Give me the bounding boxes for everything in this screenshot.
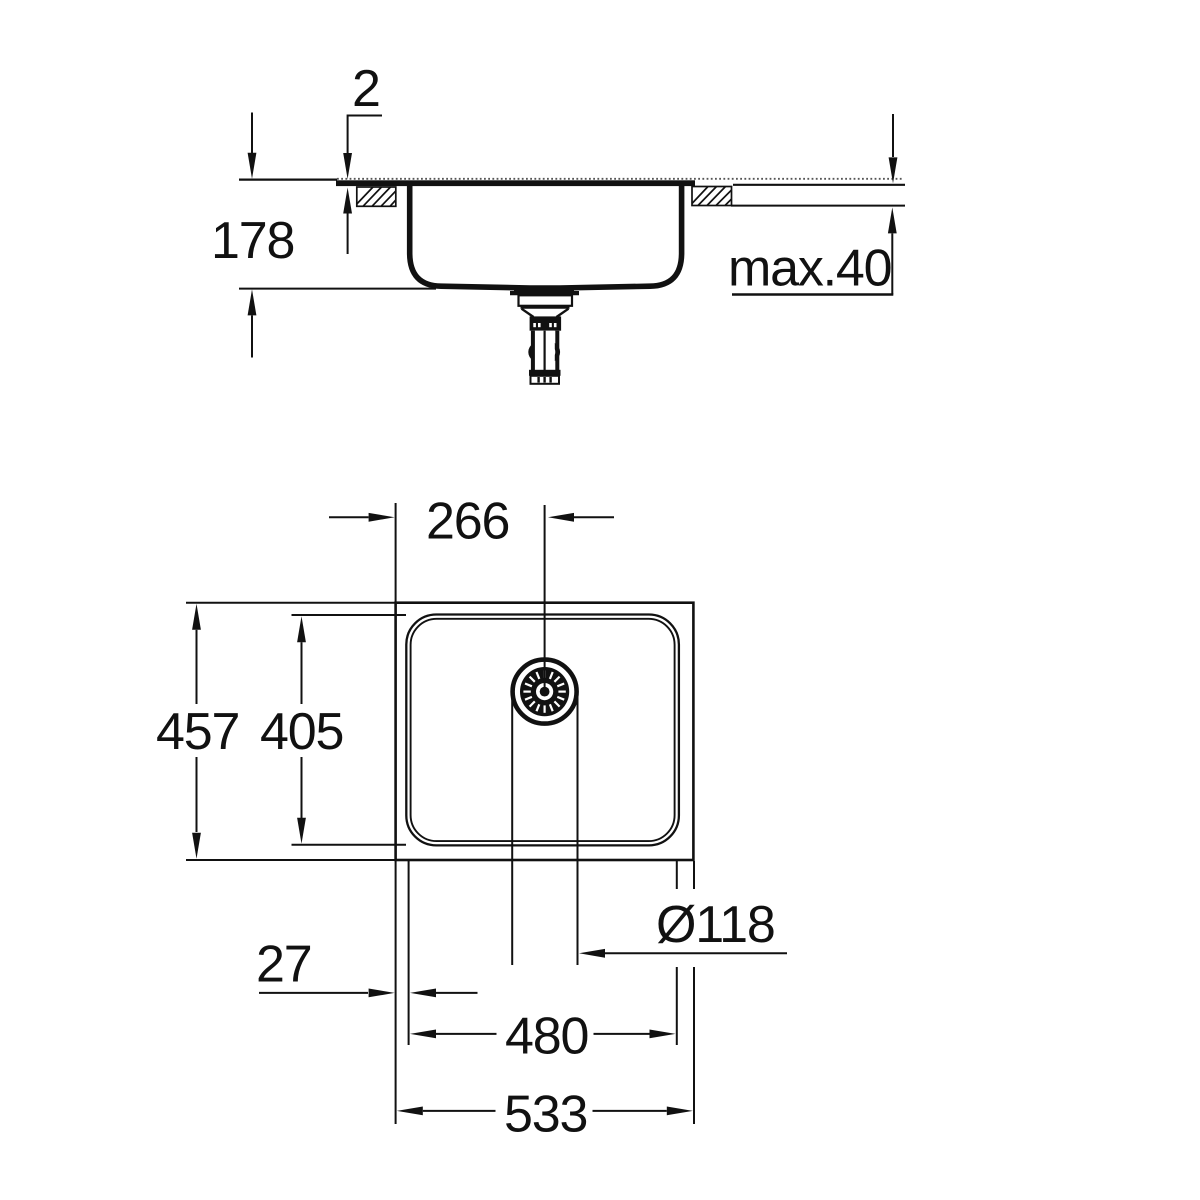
svg-text:27: 27: [256, 936, 311, 994]
svg-text:480: 480: [505, 1008, 588, 1066]
svg-text:457: 457: [156, 703, 239, 761]
svg-text:max.40: max.40: [728, 240, 891, 298]
svg-text:533: 533: [504, 1086, 587, 1144]
svg-text:405: 405: [260, 703, 343, 761]
svg-text:Ø118: Ø118: [656, 896, 775, 954]
svg-text:178: 178: [211, 212, 294, 270]
svg-text:2: 2: [352, 60, 380, 118]
svg-text:266: 266: [426, 493, 509, 551]
